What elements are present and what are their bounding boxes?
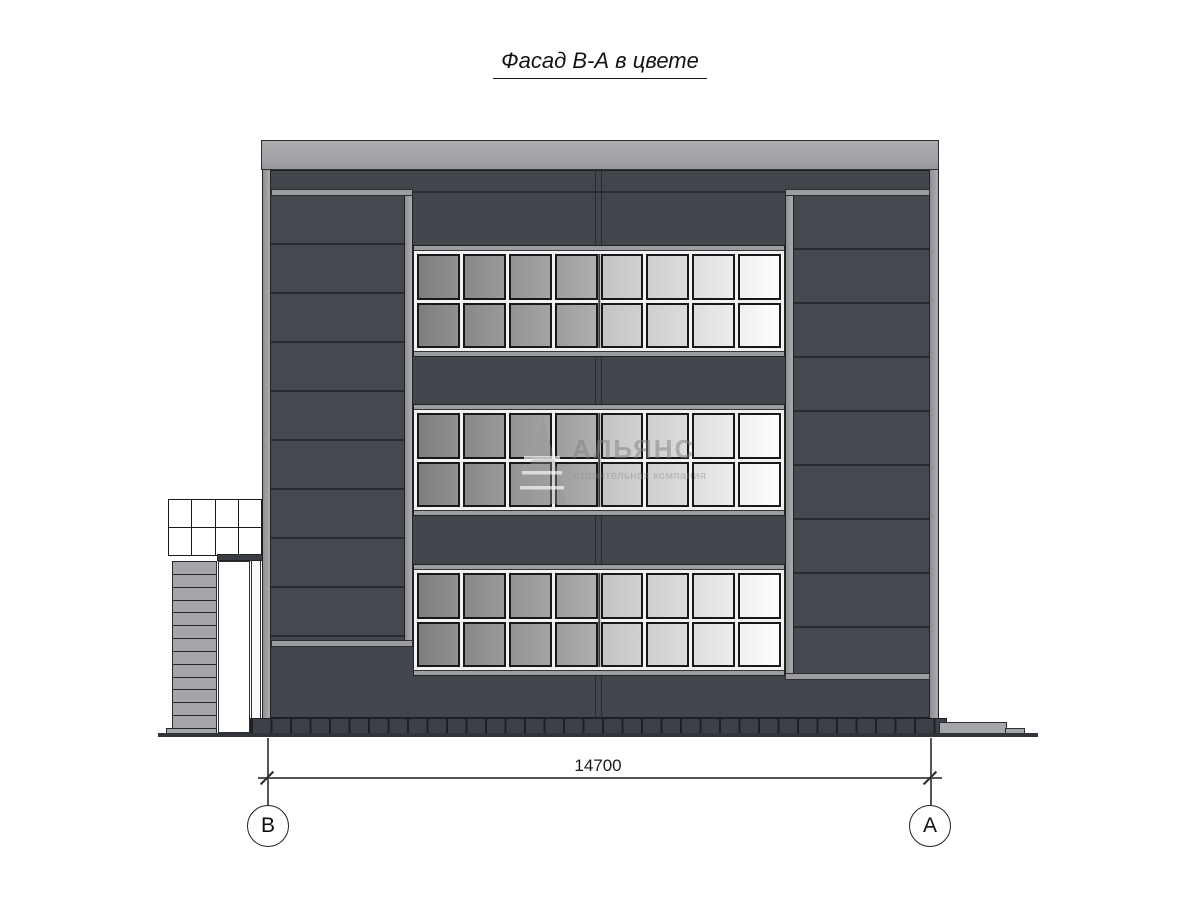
stair-step	[172, 690, 217, 703]
right-cladding-panel	[794, 196, 929, 674]
window-pane	[738, 622, 781, 668]
stair-step	[172, 703, 217, 716]
stair-glazing-cell	[216, 500, 238, 527]
stair-step	[172, 575, 217, 588]
window-pane	[646, 254, 689, 300]
center-mullion	[598, 573, 600, 667]
window-pane	[555, 462, 598, 508]
window-pane	[601, 622, 644, 668]
window-pane	[738, 462, 781, 508]
window-pane	[417, 413, 460, 459]
window-pane	[738, 254, 781, 300]
stair-step	[172, 588, 217, 601]
window-band	[413, 245, 785, 357]
door-lintel	[217, 554, 263, 561]
stair-step	[172, 652, 217, 665]
window-pane	[417, 462, 460, 508]
window-pane	[509, 573, 552, 619]
window-pane	[509, 462, 552, 508]
right-panel-top-trim	[785, 189, 930, 196]
window-pane	[417, 622, 460, 668]
window-frame	[414, 409, 784, 511]
ground-line	[158, 733, 1038, 737]
window-pane	[692, 254, 735, 300]
stair-glazing-cell	[169, 500, 191, 527]
window-pane	[509, 303, 552, 349]
drawing-header: Фасад В-А в цвете	[0, 48, 1200, 79]
parapet-cap	[261, 140, 939, 170]
stair-step	[172, 626, 217, 639]
window-pane	[463, 413, 506, 459]
window-pane	[417, 573, 460, 619]
window-pane	[463, 254, 506, 300]
page-title: Фасад В-А в цвете	[493, 48, 707, 79]
center-mullion	[598, 413, 600, 507]
stair-steps	[172, 561, 217, 729]
window-pane	[463, 303, 506, 349]
stair-glazing-cell	[239, 500, 261, 527]
stair-glazing-cell	[192, 500, 214, 527]
window-pane	[601, 573, 644, 619]
left-panel-mullion	[404, 189, 413, 646]
window-pane	[555, 254, 598, 300]
stair-step	[172, 678, 217, 691]
stair-step	[172, 561, 217, 575]
window-pane	[601, 303, 644, 349]
axis-label: В	[261, 814, 275, 838]
window-pane	[509, 413, 552, 459]
window-pane	[463, 462, 506, 508]
facade-joint-line	[413, 191, 785, 193]
window-pane	[601, 254, 644, 300]
left-panel-top-trim	[271, 189, 413, 196]
stair-step	[172, 639, 217, 652]
stair-glazing-cell	[169, 528, 191, 555]
window-pane	[555, 303, 598, 349]
window-pane	[692, 462, 735, 508]
window-frame	[414, 250, 784, 352]
window-pane	[692, 573, 735, 619]
entrance-door	[218, 561, 250, 733]
stair-step	[172, 665, 217, 678]
left-panel-bottom-trim	[271, 640, 413, 647]
window-pane	[601, 413, 644, 459]
dimension-line	[258, 777, 942, 779]
window-pane	[646, 622, 689, 668]
window-pane	[692, 303, 735, 349]
window-pane	[509, 254, 552, 300]
door-side-panel	[251, 561, 261, 733]
window-pane	[463, 622, 506, 668]
left-edge-mullion	[262, 170, 271, 718]
stair-glazing-cell	[192, 528, 214, 555]
window-pane	[738, 573, 781, 619]
axis-marker-a: А	[909, 805, 951, 847]
window-pane	[509, 622, 552, 668]
elevation-drawing: Фасад В-А в цвете	[0, 0, 1200, 900]
right-panel-bottom-trim	[785, 673, 930, 680]
right-panel-mullion	[785, 189, 794, 680]
window-band	[413, 564, 785, 676]
window-pane	[646, 303, 689, 349]
stair-glazing-cell	[216, 528, 238, 555]
window-pane	[417, 303, 460, 349]
window-pane	[738, 413, 781, 459]
window-pane	[692, 413, 735, 459]
window-pane	[646, 413, 689, 459]
stair-glazing-cell	[239, 528, 261, 555]
stair-glazing-grid	[168, 499, 262, 556]
window-frame	[414, 569, 784, 671]
axis-label: А	[923, 814, 937, 838]
window-pane	[555, 573, 598, 619]
stair-step	[172, 613, 217, 626]
dimension-extension-line	[267, 738, 269, 805]
window-pane	[601, 462, 644, 508]
right-edge-mullion	[929, 170, 939, 718]
plinth	[250, 718, 947, 734]
window-pane	[417, 254, 460, 300]
window-band	[413, 404, 785, 516]
window-pane	[463, 573, 506, 619]
axis-marker-b: В	[247, 805, 289, 847]
dimension-extension-line	[930, 738, 932, 805]
center-mullion	[598, 254, 600, 348]
window-pane	[555, 622, 598, 668]
stair-step	[172, 601, 217, 614]
window-pane	[646, 462, 689, 508]
window-pane	[646, 573, 689, 619]
window-pane	[555, 413, 598, 459]
dimension-value: 14700	[548, 756, 648, 776]
window-pane	[692, 622, 735, 668]
window-pane	[738, 303, 781, 349]
left-cladding-panel	[271, 196, 404, 640]
